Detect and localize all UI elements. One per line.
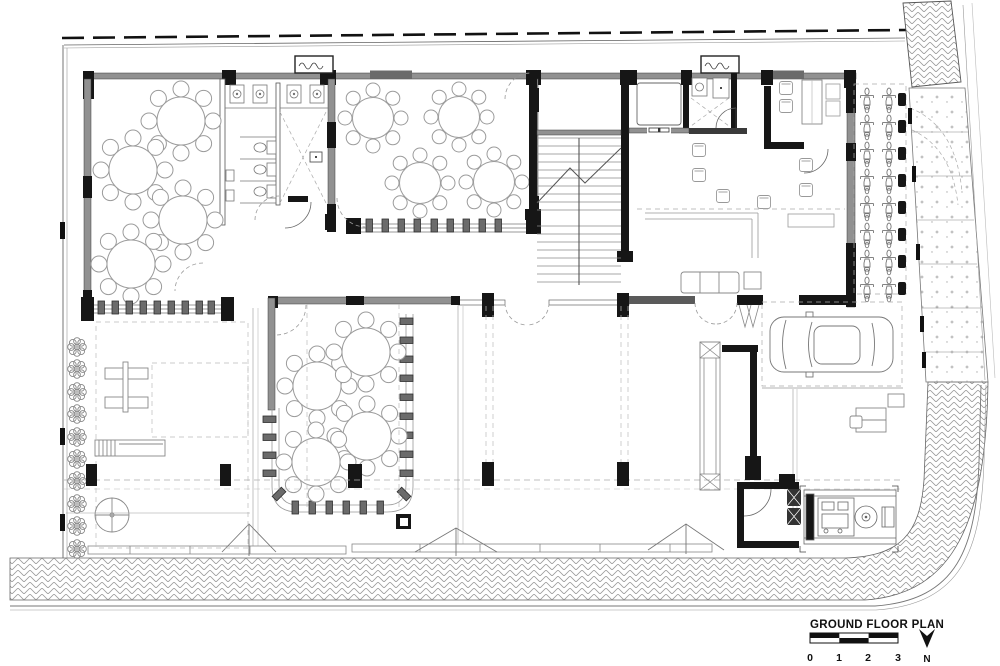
lounge-chair [693,169,706,182]
column [348,464,362,488]
scale-label-3: 3 [895,652,901,664]
round-dining-table [276,422,356,502]
equipment-box [701,56,739,73]
scale-bar [810,633,898,643]
column [617,462,629,486]
scale-label-1: 1 [836,652,842,664]
column [86,464,97,486]
round-dining-table [385,148,455,218]
drawing-title: GROUND FLOOR PLAN [810,619,944,631]
partition-wall [220,79,225,225]
floor-plan-page: GROUND FLOOR PLAN 0 1 2 3 N [0,0,1000,666]
desk [788,214,834,227]
umbrella-table [95,498,129,532]
north-window-wall [84,73,856,79]
office-chair [780,100,793,113]
column [617,293,629,317]
herringbone-patch-top [903,1,961,87]
lounge-chair [800,184,813,197]
office-chair [780,82,793,95]
lounge-chair [693,144,706,157]
round-dining-table [424,82,494,152]
column [482,293,494,317]
scale-label-0: 0 [807,652,813,664]
lounge-chair [758,196,771,209]
round-dining-table [338,83,408,153]
floor-plan-canvas: GROUND FLOOR PLAN 0 1 2 3 N [0,0,1000,666]
north-label: N [923,654,930,665]
round-dining-table [326,312,406,392]
round-dining-table [91,224,171,304]
column [482,462,494,486]
lounge-chair [717,190,730,203]
equipment-box [295,56,333,73]
scale-label-2: 2 [865,652,871,664]
round-dining-table [459,147,529,217]
lounge-chair [800,159,813,172]
column [220,464,231,486]
